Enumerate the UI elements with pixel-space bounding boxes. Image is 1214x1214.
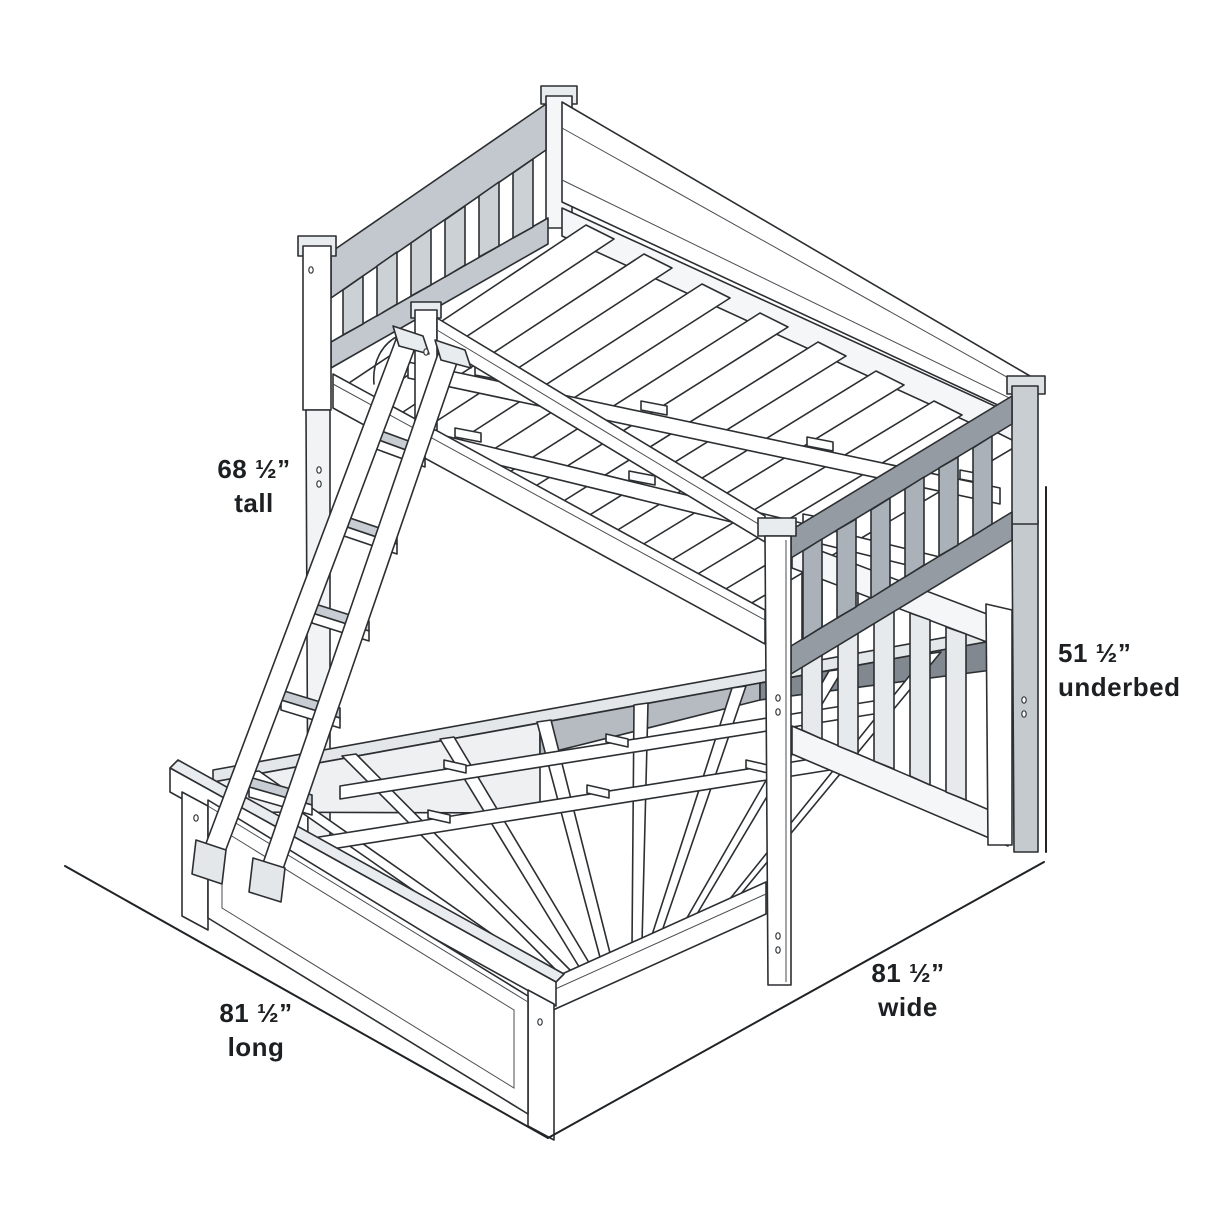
wide-word: wide bbox=[877, 992, 938, 1022]
loft-near-leg bbox=[765, 536, 791, 985]
long-word: long bbox=[228, 1032, 285, 1062]
bunk-bed-dimension-diagram: 68 ½” tall 51 ½” underbed 81 ½” long 81 … bbox=[0, 0, 1214, 1214]
label-wide: 81 ½” wide bbox=[871, 958, 944, 1022]
long-value: 81 ½” bbox=[219, 998, 292, 1028]
dimension-line-wide bbox=[548, 862, 1044, 1138]
wide-value: 81 ½” bbox=[871, 958, 944, 988]
loft-far-leg bbox=[1012, 520, 1038, 852]
tall-value: 68 ½” bbox=[217, 454, 290, 484]
bed-line-drawing: 68 ½” tall 51 ½” underbed 81 ½” long 81 … bbox=[0, 0, 1214, 1214]
tall-word: tall bbox=[234, 488, 274, 518]
label-underbed: 51 ½” underbed bbox=[1058, 638, 1180, 702]
underbed-word: underbed bbox=[1058, 672, 1180, 702]
underbed-value: 51 ½” bbox=[1058, 638, 1131, 668]
label-long: 81 ½” long bbox=[219, 998, 292, 1062]
label-tall: 68 ½” tall bbox=[217, 454, 290, 518]
